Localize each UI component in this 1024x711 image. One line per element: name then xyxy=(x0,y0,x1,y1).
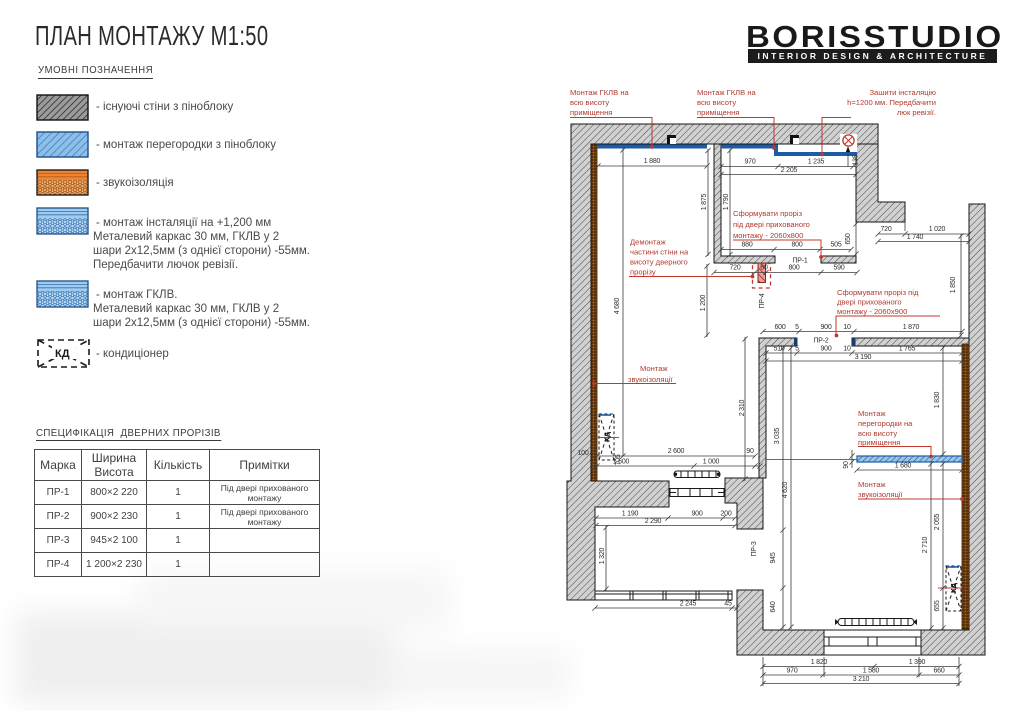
svg-text:590: 590 xyxy=(833,265,844,272)
svg-text:1 880: 1 880 xyxy=(644,158,661,165)
svg-text:970: 970 xyxy=(744,159,755,166)
svg-text:3 210: 3 210 xyxy=(853,676,870,683)
svg-text:2 290: 2 290 xyxy=(645,518,662,525)
svg-text:600: 600 xyxy=(774,324,785,331)
svg-text:приміщення: приміщення xyxy=(697,108,739,117)
svg-text:1 235: 1 235 xyxy=(808,159,825,166)
svg-text:505: 505 xyxy=(830,242,841,249)
svg-text:900: 900 xyxy=(691,511,702,518)
svg-text:1 875: 1 875 xyxy=(701,193,708,210)
svg-text:h=1200 мм. Передбачити: h=1200 мм. Передбачити xyxy=(847,98,936,107)
svg-text:1 390: 1 390 xyxy=(909,659,926,666)
svg-text:1 830: 1 830 xyxy=(934,391,941,408)
svg-text:ПР-1: ПР-1 xyxy=(792,258,807,265)
svg-text:655: 655 xyxy=(934,600,941,611)
svg-text:2 055: 2 055 xyxy=(934,513,941,530)
svg-text:720: 720 xyxy=(880,226,891,233)
svg-text:приміщення: приміщення xyxy=(858,438,900,447)
svg-text:1 200: 1 200 xyxy=(700,294,707,311)
svg-text:всю висоту: всю висоту xyxy=(697,98,736,107)
svg-text:945: 945 xyxy=(770,552,777,563)
svg-text:монтажу - 2060х900: монтажу - 2060х900 xyxy=(837,307,907,316)
svg-text:Монтаж ГКЛВ на: Монтаж ГКЛВ на xyxy=(697,88,757,97)
svg-text:800: 800 xyxy=(788,265,799,272)
svg-text:Монтаж ГКЛВ на: Монтаж ГКЛВ на xyxy=(570,88,630,97)
svg-text:висоту дверного: висоту дверного xyxy=(630,258,688,267)
svg-text:всю висоту: всю висоту xyxy=(570,98,609,107)
svg-text:1 850: 1 850 xyxy=(950,276,957,293)
svg-text:640: 640 xyxy=(770,601,777,612)
svg-text:Демонтаж: Демонтаж xyxy=(630,238,667,247)
svg-text:приміщення: приміщення xyxy=(570,108,612,117)
svg-text:1 320: 1 320 xyxy=(599,547,606,564)
svg-text:4 680: 4 680 xyxy=(614,297,621,314)
svg-text:2 310: 2 310 xyxy=(739,399,746,416)
svg-text:1 600: 1 600 xyxy=(613,459,630,466)
svg-text:1 820: 1 820 xyxy=(811,659,828,666)
svg-text:перегородки на: перегородки на xyxy=(858,419,913,428)
svg-text:2 710: 2 710 xyxy=(922,536,929,553)
svg-text:90: 90 xyxy=(746,448,754,455)
svg-text:4 620: 4 620 xyxy=(782,481,789,498)
svg-text:Сформувати проріз під: Сформувати проріз під xyxy=(837,288,919,297)
svg-text:ПР-2: ПР-2 xyxy=(813,338,828,345)
svg-text:Сформувати проріз: Сформувати проріз xyxy=(733,209,803,218)
svg-text:2 205: 2 205 xyxy=(781,167,798,174)
svg-text:КД: КД xyxy=(949,582,958,593)
svg-text:1 000: 1 000 xyxy=(703,459,720,466)
svg-text:3 190: 3 190 xyxy=(855,354,872,361)
svg-text:Монтаж: Монтаж xyxy=(640,364,668,373)
svg-text:5: 5 xyxy=(795,324,799,331)
svg-text:двері прихованого: двері прихованого xyxy=(837,298,902,307)
svg-text:1 870: 1 870 xyxy=(903,324,920,331)
svg-text:ПР-4: ПР-4 xyxy=(759,293,766,308)
svg-text:90: 90 xyxy=(843,461,850,469)
svg-text:5: 5 xyxy=(795,346,799,353)
svg-text:прорізу: прорізу xyxy=(630,268,656,277)
svg-text:Зашити інсталяцію: Зашити інсталяцію xyxy=(869,88,936,97)
svg-text:100: 100 xyxy=(577,450,588,457)
svg-text:люк ревізії.: люк ревізії. xyxy=(897,108,936,117)
svg-text:звукоізоляції: звукоізоляції xyxy=(628,375,673,384)
svg-text:1 765: 1 765 xyxy=(899,346,916,353)
svg-text:1 790: 1 790 xyxy=(723,193,730,210)
svg-text:2 600: 2 600 xyxy=(668,448,685,455)
svg-text:60: 60 xyxy=(760,265,768,272)
svg-text:2 245: 2 245 xyxy=(680,601,697,608)
svg-text:1 190: 1 190 xyxy=(622,511,639,518)
svg-text:970: 970 xyxy=(786,668,797,675)
svg-text:10: 10 xyxy=(843,346,851,353)
svg-text:всю висоту: всю висоту xyxy=(858,429,897,438)
svg-text:звукоізоляції: звукоізоляції xyxy=(858,490,903,499)
svg-text:510: 510 xyxy=(773,346,784,353)
svg-text:135: 135 xyxy=(853,154,860,165)
svg-text:45: 45 xyxy=(724,601,732,608)
svg-text:КД: КД xyxy=(603,431,612,442)
svg-text:10: 10 xyxy=(843,324,851,331)
svg-text:650: 650 xyxy=(845,233,852,244)
svg-text:900: 900 xyxy=(820,324,831,331)
svg-text:720: 720 xyxy=(729,265,740,272)
svg-text:під двері прихованого: під двері прихованого xyxy=(733,220,810,229)
svg-text:частини стіни на: частини стіни на xyxy=(630,248,689,257)
svg-text:Монтаж: Монтаж xyxy=(858,409,886,418)
svg-text:3 035: 3 035 xyxy=(774,427,781,444)
svg-text:1 680: 1 680 xyxy=(895,463,912,470)
svg-text:900: 900 xyxy=(820,346,831,353)
svg-text:200: 200 xyxy=(720,511,731,518)
svg-text:Монтаж: Монтаж xyxy=(858,480,886,489)
svg-text:1 740: 1 740 xyxy=(907,234,924,241)
svg-text:ПР-3: ПР-3 xyxy=(751,541,758,556)
svg-text:880: 880 xyxy=(741,242,752,249)
svg-text:1 020: 1 020 xyxy=(929,226,946,233)
svg-text:монтажу - 2060х800: монтажу - 2060х800 xyxy=(733,231,803,240)
svg-text:800: 800 xyxy=(791,242,802,249)
svg-text:660: 660 xyxy=(933,668,944,675)
svg-text:1 580: 1 580 xyxy=(863,668,880,675)
